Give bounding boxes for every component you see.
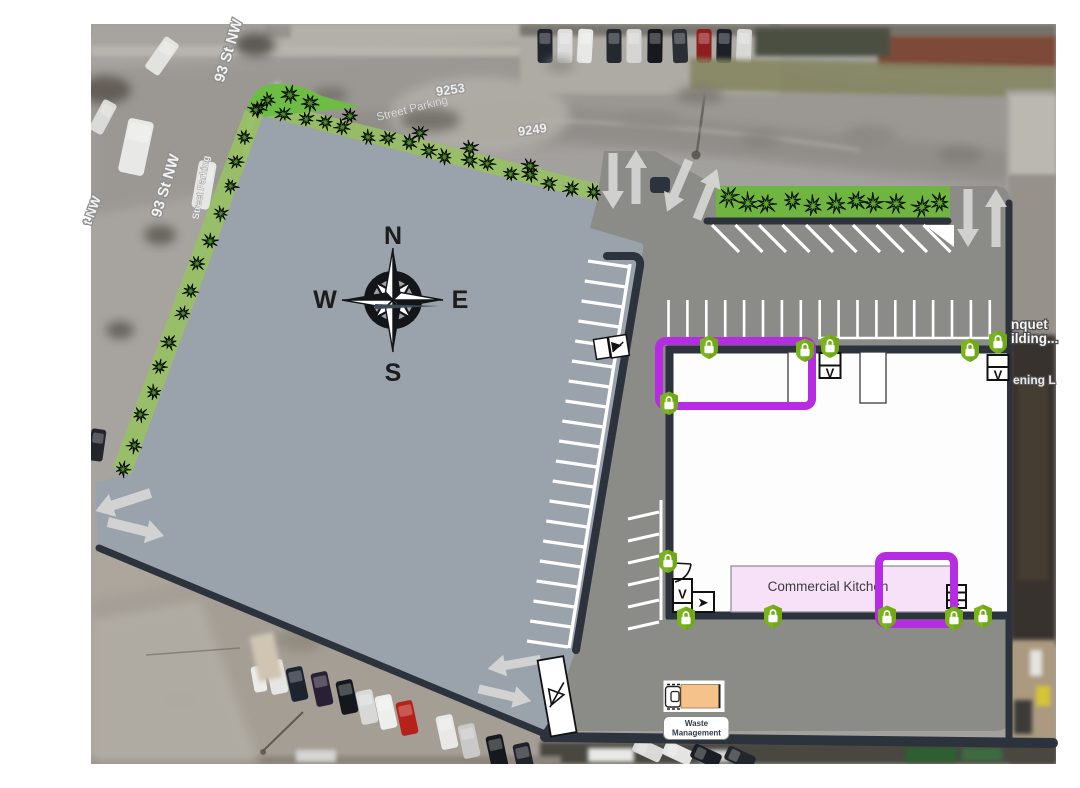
svg-text:Management: Management	[672, 729, 721, 738]
svg-text:N: N	[384, 222, 402, 250]
svg-text:ening L: ening L	[1013, 373, 1056, 387]
svg-text:V: V	[994, 368, 1003, 383]
svg-text:V: V	[826, 366, 835, 381]
svg-text:E: E	[452, 286, 469, 314]
svg-text:Commercial Kitchen: Commercial Kitchen	[768, 579, 889, 594]
svg-text:S: S	[385, 359, 402, 387]
svg-text:➤: ➤	[698, 596, 709, 610]
svg-text:ilding...: ilding...	[1011, 331, 1058, 346]
svg-text:V: V	[678, 587, 687, 602]
svg-text:nquet: nquet	[1011, 317, 1048, 332]
svg-text:Waste: Waste	[685, 719, 709, 728]
svg-text:W: W	[313, 286, 337, 314]
